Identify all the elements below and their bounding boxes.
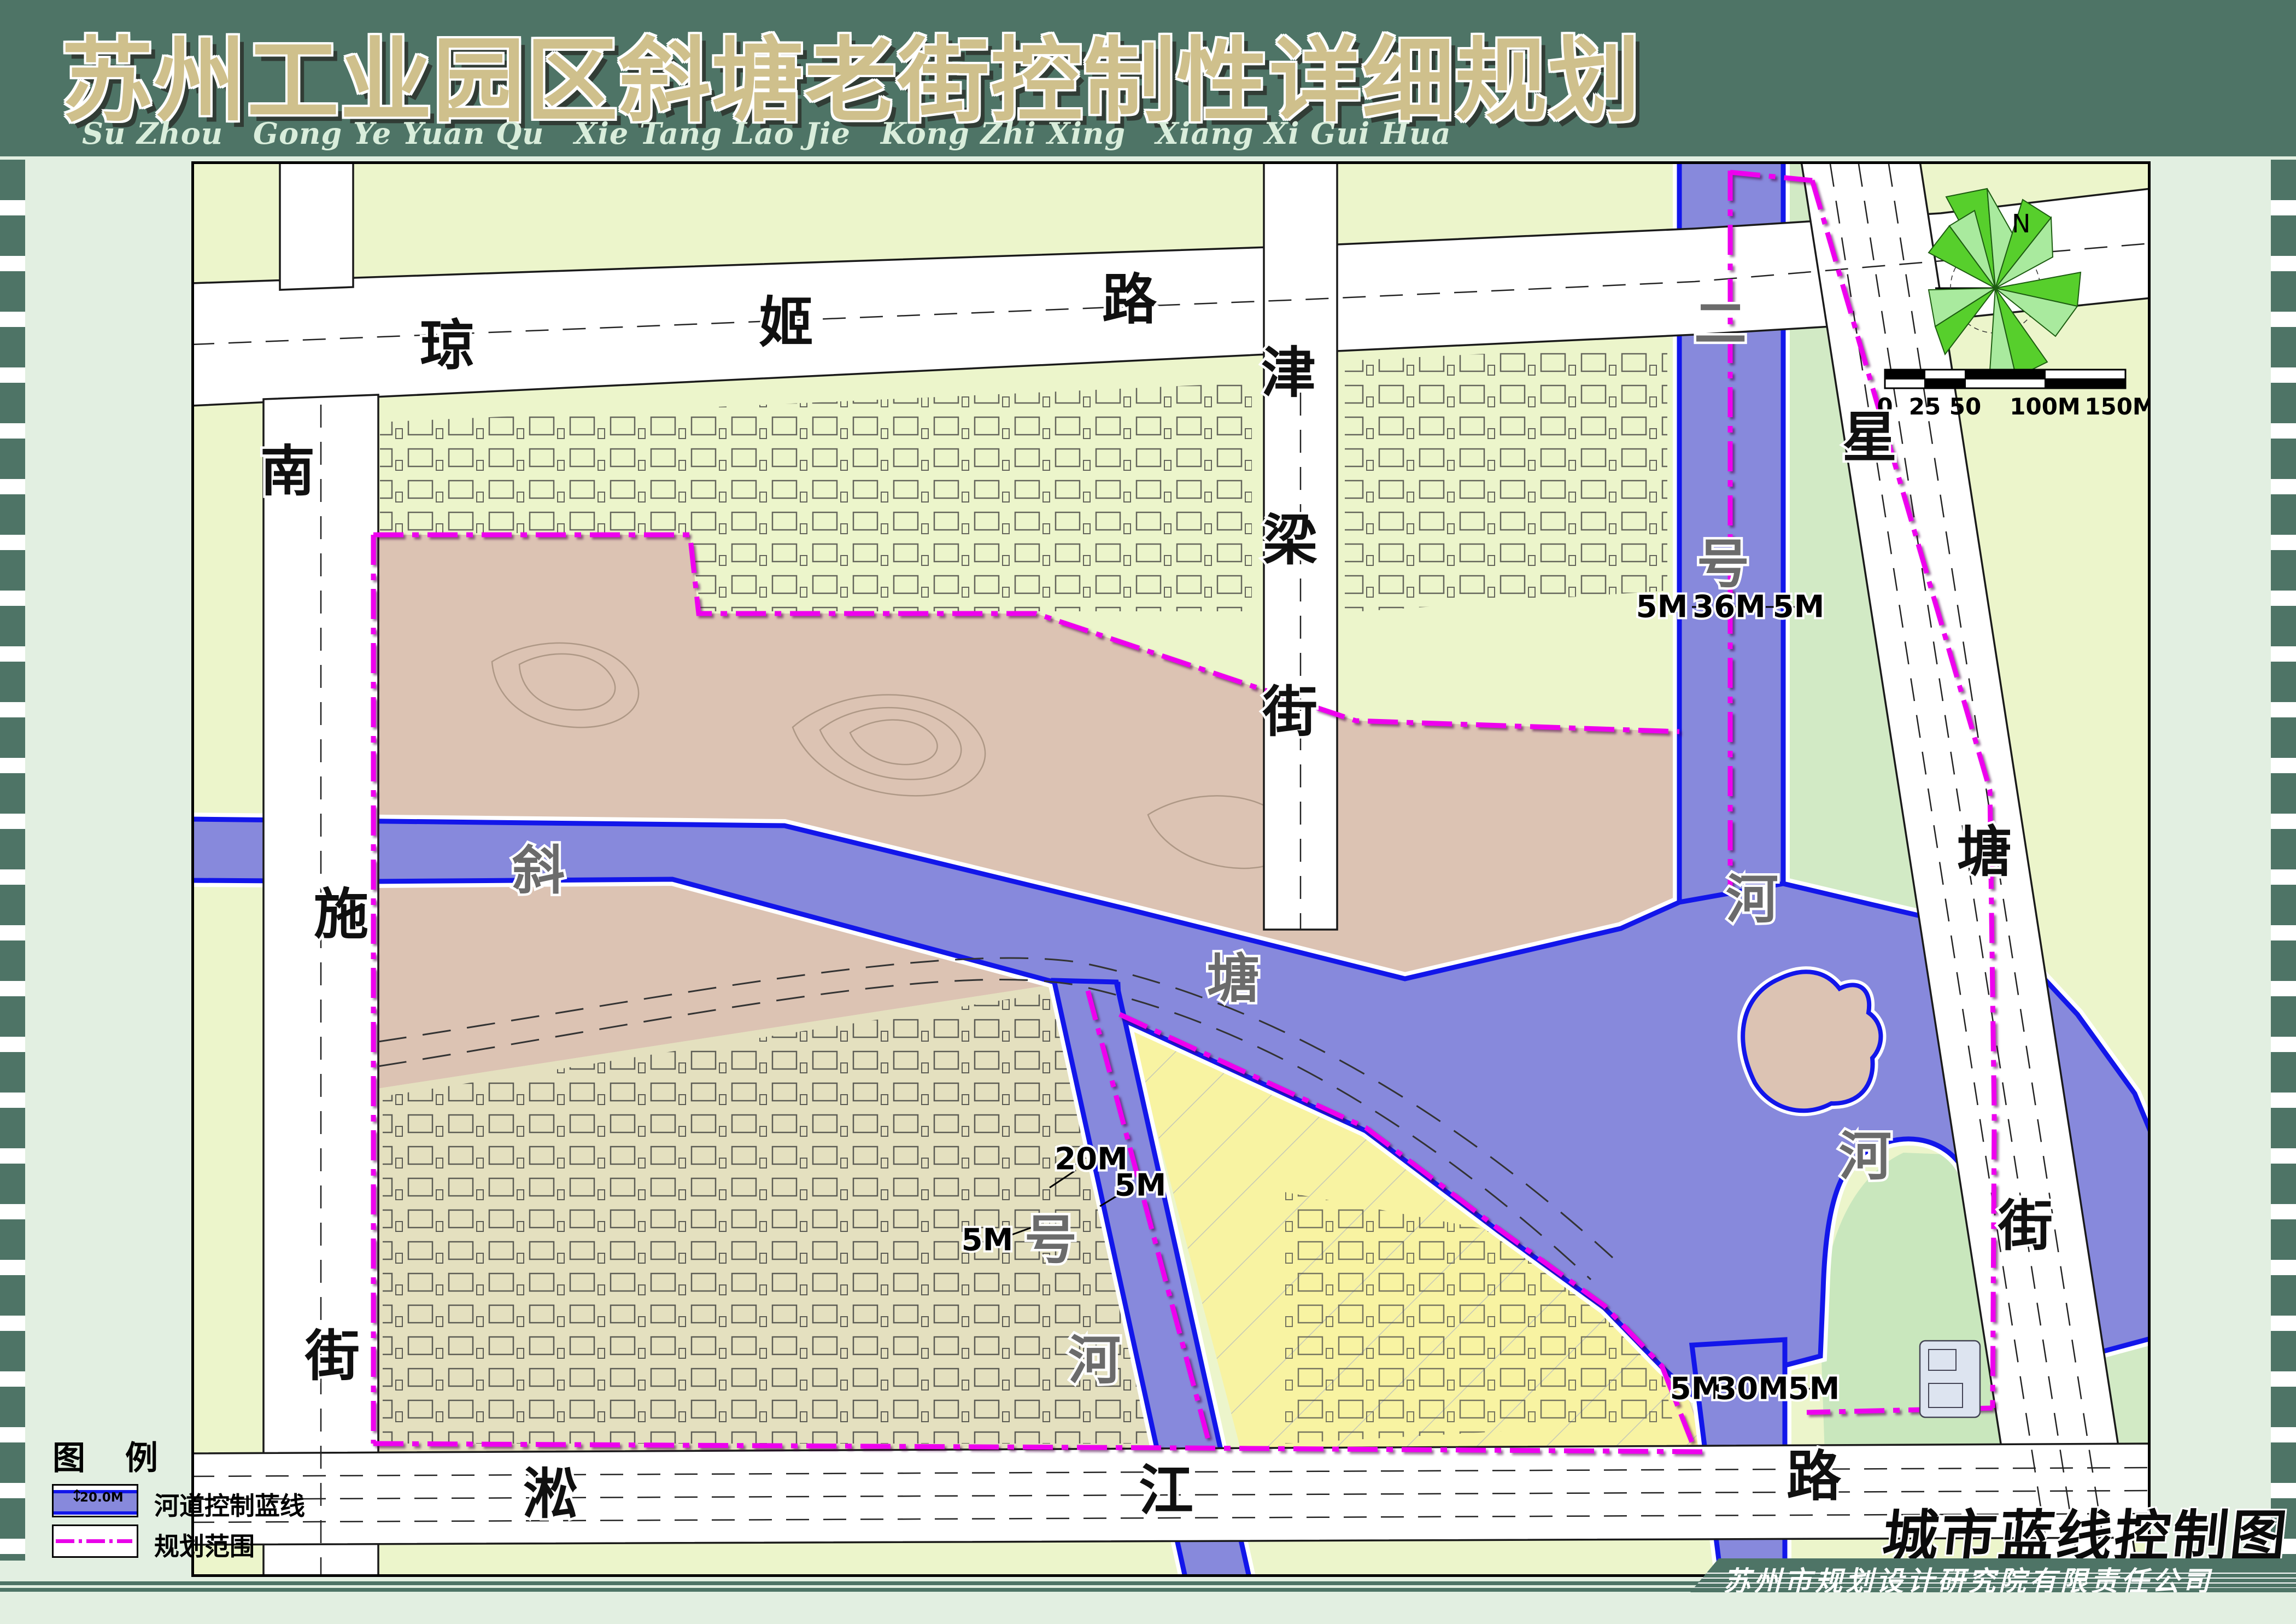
- legend-swatch-river-width: 20.0M: [80, 1491, 124, 1505]
- label-songjiang-1: 淞: [523, 1462, 578, 1526]
- dim-exit-right: 5M: [1788, 1371, 1840, 1407]
- map-canvas: 5M 36M 5M 20M 5M 5M 5M 30M 5M: [191, 161, 2151, 1577]
- dim-exit-left: 5M: [1670, 1371, 1722, 1407]
- label-jinliang-2: 梁: [1263, 509, 1317, 573]
- dim-exit-mid: 30M: [1715, 1371, 1789, 1407]
- scale-tick-50: 50: [1949, 393, 1981, 420]
- dim-yihao-right: 5M: [1115, 1168, 1167, 1204]
- label-nanshi-1: 南: [260, 440, 315, 504]
- label-xingtang-2: 塘: [1957, 820, 2012, 884]
- island-outline: [1743, 972, 1881, 1111]
- label-xingtang-3: 街: [1998, 1194, 2053, 1258]
- scale-tick-25: 25: [1909, 393, 1941, 420]
- legend-label-boundary: 规划范围: [154, 1527, 255, 1563]
- label-xietang-2: 塘: [1207, 948, 1260, 1009]
- label-xingtang-1: 星: [1842, 406, 1897, 470]
- road-nanshi-north: [280, 161, 353, 290]
- legend-title: 图 例: [52, 1432, 172, 1479]
- label-yihao-1: 号: [1024, 1210, 1077, 1271]
- label-nanshi-3: 街: [304, 1324, 360, 1388]
- scale-tick-150: 150M: [2084, 393, 2151, 420]
- label-erhao-3: 河: [1726, 869, 1778, 930]
- page-title-pinyin: Su Zhou Gong Ye Yuan Qu Xie Tang Lao Jie…: [82, 116, 1451, 151]
- buildings-northeast: [1345, 344, 1667, 612]
- scale-bar: 0 25 50 100M 150M: [1877, 370, 2151, 420]
- label-songjiang-2: 江: [1139, 1459, 1193, 1523]
- label-xietang-1: 斜: [512, 840, 565, 901]
- label-erhao-1: 二: [1694, 293, 1747, 354]
- company-band: 苏州市规划设计研究院有限责任公司: [1690, 1558, 2296, 1592]
- label-qiongji-2: 姬: [759, 291, 813, 355]
- legend-swatch-boundary: [52, 1524, 138, 1558]
- legend-swatch-river: ↕ 20.0M: [52, 1484, 138, 1517]
- label-erhao-2: 号: [1697, 534, 1749, 595]
- legend-label-river: 河道控制蓝线: [154, 1486, 305, 1522]
- label-yihao-2: 河: [1068, 1330, 1121, 1391]
- label-qiongji-1: 琼: [420, 314, 475, 378]
- dim-erhao-right: 5M: [1773, 589, 1825, 625]
- page: 苏州工业园区斜塘老街控制性详细规划 Su Zhou Gong Ye Yuan Q…: [0, 0, 2296, 1624]
- dim-erhao-left: 5M: [1636, 589, 1688, 625]
- label-jinliang-3: 街: [1262, 680, 1317, 744]
- label-songjiang-3: 路: [1787, 1445, 1842, 1509]
- label-nanshi-2: 施: [314, 883, 368, 947]
- border-checker-left: [0, 160, 25, 1561]
- dim-yihao-left: 5M: [962, 1223, 1014, 1258]
- border-checker-right: [2271, 160, 2296, 1561]
- legend-swatch-boundary-line: [56, 1539, 132, 1543]
- label-jinliang-1: 津: [1261, 341, 1316, 405]
- label-qiongji-3: 路: [1102, 268, 1157, 332]
- title-band: 苏州工业园区斜塘老街控制性详细规划 Su Zhou Gong Ye Yuan Q…: [0, 0, 2296, 156]
- label-xietang-3: 河: [1839, 1126, 1891, 1187]
- scale-tick-100: 100M: [2010, 393, 2080, 420]
- park-compound: [1920, 1341, 1980, 1417]
- company-name: 苏州市规划设计研究院有限责任公司: [1723, 1559, 2213, 1599]
- north-label: N: [2012, 209, 2030, 238]
- plan-map: 5M 36M 5M 20M 5M 5M 5M 30M 5M: [191, 161, 2151, 1577]
